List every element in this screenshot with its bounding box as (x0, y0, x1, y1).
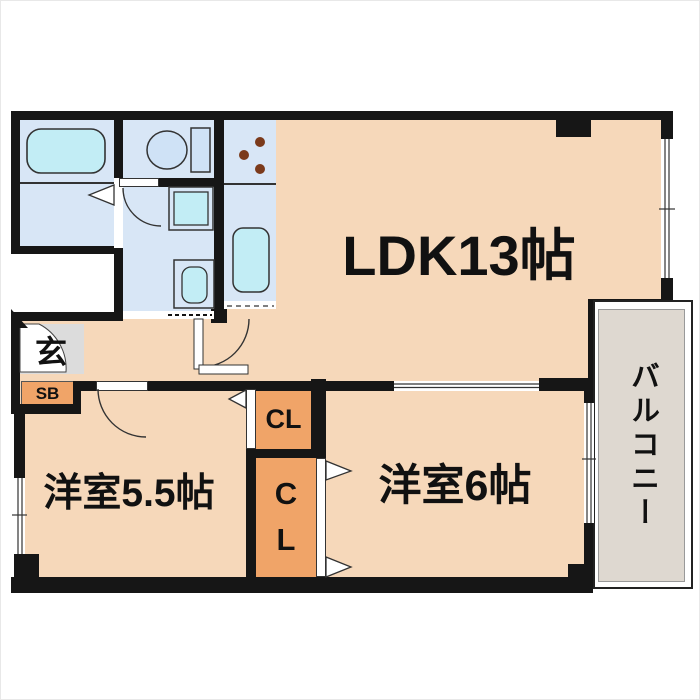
kitchen-divider (224, 183, 276, 185)
floorplan: LDK13帖 洋室5.5帖 洋室6帖 バルコニー 玄 SB CL C L (0, 0, 700, 700)
kitchen-pass-strip (224, 301, 276, 309)
wall (11, 312, 116, 321)
wall (11, 246, 116, 254)
toilet-door-gap (119, 178, 159, 187)
wall (326, 381, 394, 391)
wall (661, 111, 673, 139)
window-room6-right (584, 403, 594, 523)
wall (11, 312, 20, 414)
washroom-entry-strip (123, 311, 214, 319)
wall (114, 119, 123, 178)
western-room-5-5-label: 洋室5.5帖 (29, 469, 229, 517)
exterior-notch (1, 254, 114, 312)
closet-lower-label-c: C (256, 473, 316, 513)
wall (11, 404, 79, 414)
toilet-room-floor (123, 119, 214, 178)
wall (14, 414, 25, 478)
ldk-label: LDK13帖 (301, 223, 617, 289)
wall (568, 564, 593, 577)
entrance-label: 玄 (31, 334, 71, 370)
wall (214, 119, 224, 309)
closet-upper-door (246, 389, 256, 449)
wall (246, 458, 256, 577)
room55-door-gap (96, 381, 148, 391)
bathroom-door (114, 178, 123, 248)
washroom-floor (123, 187, 214, 312)
wall (73, 381, 96, 391)
bathroom-divider (20, 182, 114, 184)
wall (148, 381, 311, 391)
western-room-6-label: 洋室6帖 (349, 461, 561, 511)
wall (556, 120, 591, 137)
window-room55-left (14, 478, 25, 554)
window-ldk-right (661, 139, 673, 278)
wall (311, 379, 326, 458)
kitchen-counter (224, 119, 276, 301)
balcony-label: バルコニー (599, 309, 685, 582)
wall (661, 278, 673, 301)
room6-sliding-door (394, 381, 539, 391)
wall (11, 111, 20, 254)
wall (11, 577, 593, 593)
wall (11, 111, 673, 120)
wall (246, 449, 326, 458)
closet-upper-label: CL (256, 397, 311, 441)
closet-lower-label-l: L (256, 519, 316, 559)
closet-lower-door (316, 458, 326, 577)
wall (114, 248, 123, 321)
shoe-box-label: SB (22, 382, 73, 404)
